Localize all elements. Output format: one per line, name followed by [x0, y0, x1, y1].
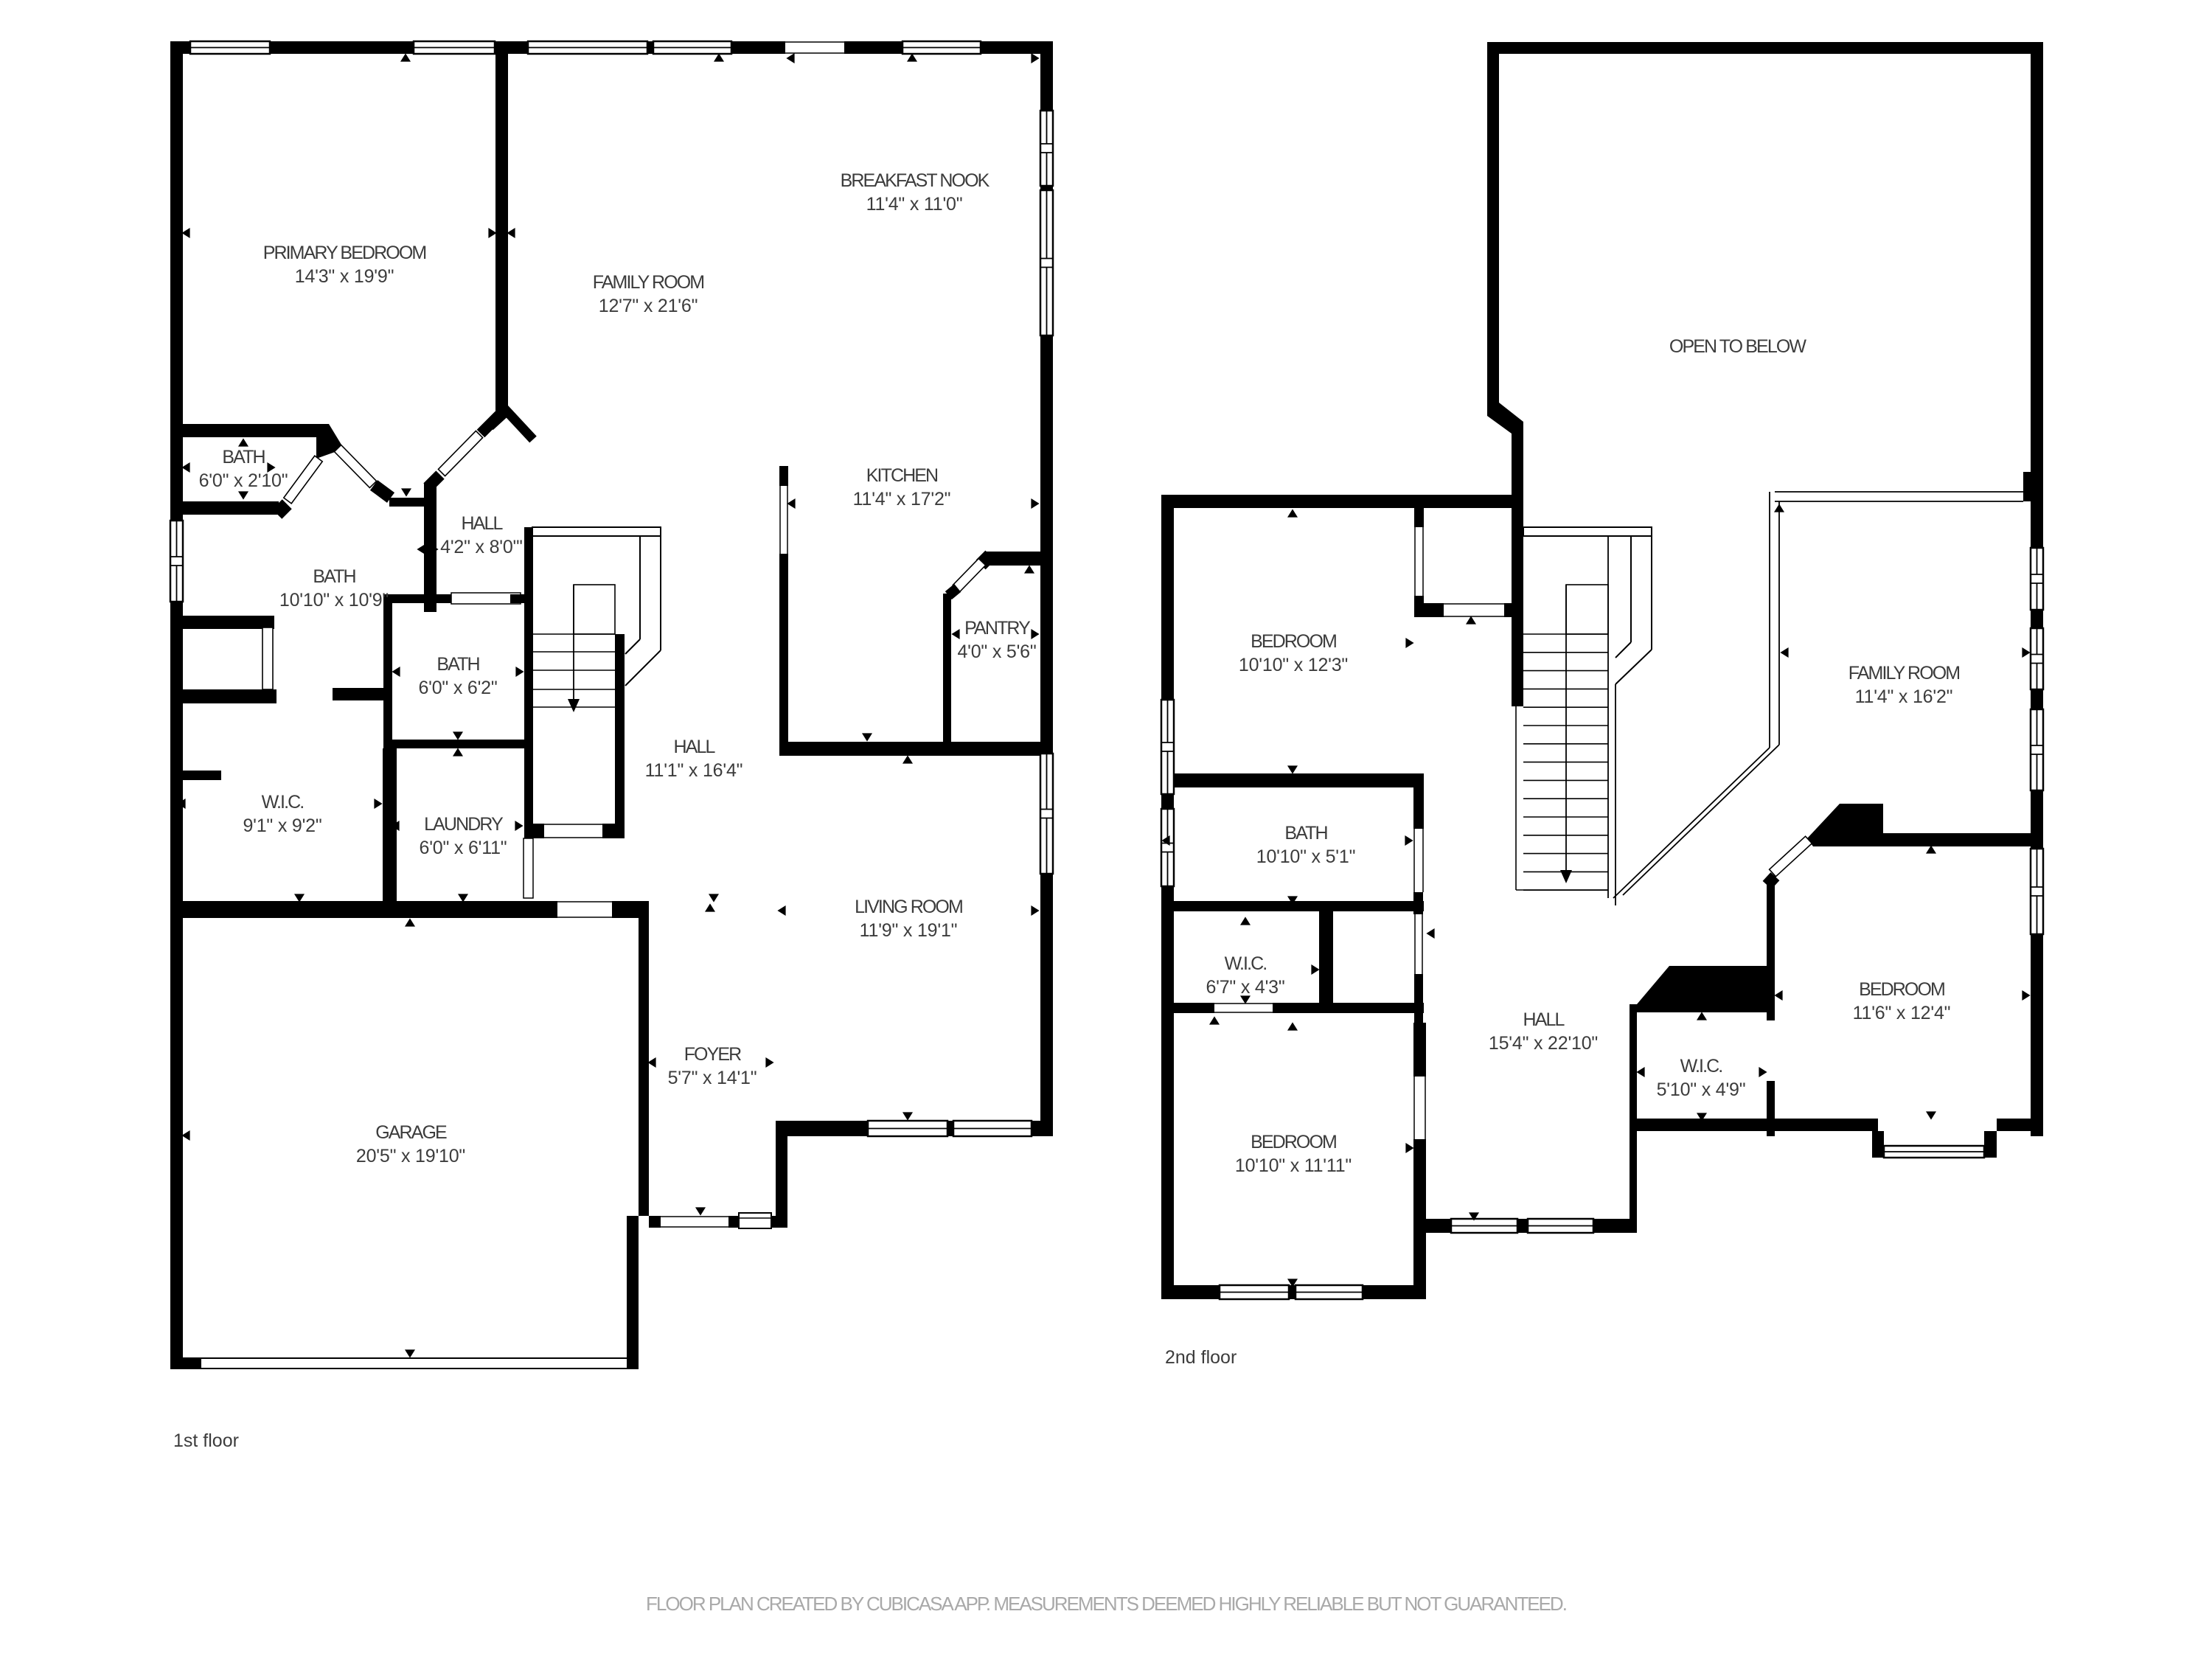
svg-text:GARAGE: GARAGE	[375, 1122, 447, 1143]
svg-text:BEDROOM: BEDROOM	[1251, 631, 1336, 652]
svg-text:11'4" x 11'0": 11'4" x 11'0"	[866, 194, 963, 215]
svg-text:LAUNDRY: LAUNDRY	[424, 814, 504, 835]
svg-text:1st floor: 1st floor	[173, 1430, 239, 1451]
svg-text:PRIMARY BEDROOM: PRIMARY BEDROOM	[263, 243, 426, 263]
svg-text:BATH: BATH	[222, 447, 265, 467]
svg-text:FAMILY ROOM: FAMILY ROOM	[593, 272, 704, 293]
svg-text:6'0" x 6'2": 6'0" x 6'2"	[418, 678, 497, 698]
svg-text:BEDROOM: BEDROOM	[1859, 979, 1944, 1000]
svg-text:12'7" x 21'6": 12'7" x 21'6"	[599, 296, 698, 316]
svg-text:6'0" x 2'10": 6'0" x 2'10"	[199, 470, 288, 491]
svg-text:BATH: BATH	[1284, 823, 1327, 844]
svg-text:6'7" x 4'3": 6'7" x 4'3"	[1206, 977, 1284, 998]
svg-text:10'10" x 12'3": 10'10" x 12'3"	[1239, 655, 1348, 675]
svg-text:11'6" x 12'4": 11'6" x 12'4"	[1853, 1003, 1951, 1023]
svg-text:15'4" x 22'10": 15'4" x 22'10"	[1489, 1033, 1598, 1054]
svg-text:10'10" x 5'1": 10'10" x 5'1"	[1256, 846, 1356, 867]
svg-text:11'1" x 16'4": 11'1" x 16'4"	[645, 760, 743, 781]
svg-text:W.I.C.: W.I.C.	[1225, 953, 1267, 974]
svg-text:14'3" x 19'9": 14'3" x 19'9"	[295, 266, 394, 287]
svg-text:11'4" x 16'2": 11'4" x 16'2"	[1855, 686, 1953, 707]
svg-text:9'1" x 9'2": 9'1" x 9'2"	[243, 815, 321, 836]
svg-text:10'10" x 11'11": 10'10" x 11'11"	[1235, 1155, 1352, 1176]
svg-text:10'10" x 10'9": 10'10" x 10'9"	[279, 590, 389, 611]
svg-text:BATH: BATH	[313, 566, 355, 587]
svg-text:BATH: BATH	[437, 654, 479, 675]
svg-text:4'0" x 5'6": 4'0" x 5'6"	[957, 641, 1036, 662]
svg-text:20'5" x 19'10": 20'5" x 19'10"	[356, 1146, 465, 1166]
svg-text:PANTRY: PANTRY	[964, 618, 1031, 639]
svg-text:4'2" x 8'0"': 4'2" x 8'0"'	[440, 537, 523, 557]
svg-text:KITCHEN: KITCHEN	[866, 465, 938, 486]
svg-text:HALL: HALL	[1523, 1009, 1565, 1030]
svg-text:HALL: HALL	[462, 513, 504, 534]
svg-text:LIVING ROOM: LIVING ROOM	[855, 897, 962, 917]
svg-text:11'4" x 17'2": 11'4" x 17'2"	[853, 489, 951, 509]
svg-text:W.I.C.: W.I.C.	[262, 792, 304, 813]
svg-text:BREAKFAST NOOK: BREAKFAST NOOK	[841, 170, 990, 191]
svg-text:5'10" x 4'9": 5'10" x 4'9"	[1657, 1079, 1746, 1100]
svg-text:BEDROOM: BEDROOM	[1251, 1132, 1336, 1152]
svg-text:W.I.C.: W.I.C.	[1680, 1056, 1722, 1077]
svg-text:5'7" x 14'1": 5'7" x 14'1"	[668, 1068, 757, 1088]
svg-text:FLOOR PLAN CREATED BY CUBICASA: FLOOR PLAN CREATED BY CUBICASA APP. MEAS…	[646, 1593, 1566, 1615]
svg-text:2nd floor: 2nd floor	[1165, 1347, 1237, 1368]
svg-text:11'9" x 19'1": 11'9" x 19'1"	[860, 920, 958, 941]
svg-text:FAMILY ROOM: FAMILY ROOM	[1848, 663, 1960, 684]
svg-text:FOYER: FOYER	[684, 1044, 741, 1065]
svg-text:OPEN TO BELOW: OPEN TO BELOW	[1669, 336, 1806, 357]
svg-text:HALL: HALL	[674, 737, 716, 757]
svg-text:6'0" x 6'11": 6'0" x 6'11"	[420, 838, 507, 858]
